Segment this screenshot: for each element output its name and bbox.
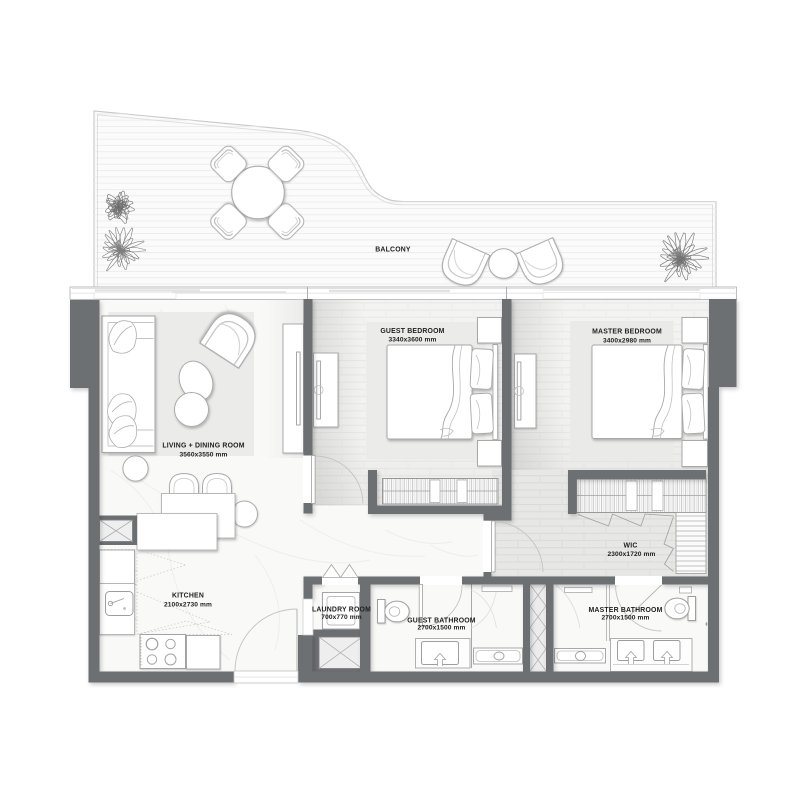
svg-text:MASTER BEDROOM: MASTER BEDROOM: [592, 329, 662, 336]
svg-text:3560x3550 mm: 3560x3550 mm: [179, 452, 227, 459]
svg-text:700x770 mm: 700x770 mm: [321, 614, 361, 621]
svg-text:WIC: WIC: [624, 543, 638, 550]
svg-text:3400x2980 mm: 3400x2980 mm: [603, 338, 651, 345]
svg-text:3340x3600 mm: 3340x3600 mm: [388, 337, 436, 344]
svg-text:2700x1500 mm: 2700x1500 mm: [601, 614, 649, 621]
svg-text:MASTER BATHROOM: MASTER BATHROOM: [588, 607, 662, 614]
svg-text:GUEST BEDROOM: GUEST BEDROOM: [380, 328, 444, 335]
svg-text:2100x2730 mm: 2100x2730 mm: [164, 602, 212, 609]
svg-text:LIVING + DINING ROOM: LIVING + DINING ROOM: [162, 443, 244, 450]
svg-text:KITCHEN: KITCHEN: [172, 593, 204, 600]
svg-text:2700x1500 mm: 2700x1500 mm: [417, 625, 465, 632]
svg-text:LAUNDRY ROOM: LAUNDRY ROOM: [312, 607, 371, 614]
svg-text:BALCONY: BALCONY: [375, 247, 411, 254]
svg-text:2300x1720 mm: 2300x1720 mm: [607, 551, 655, 558]
svg-text:GUEST BATHROOM: GUEST BATHROOM: [407, 618, 476, 625]
